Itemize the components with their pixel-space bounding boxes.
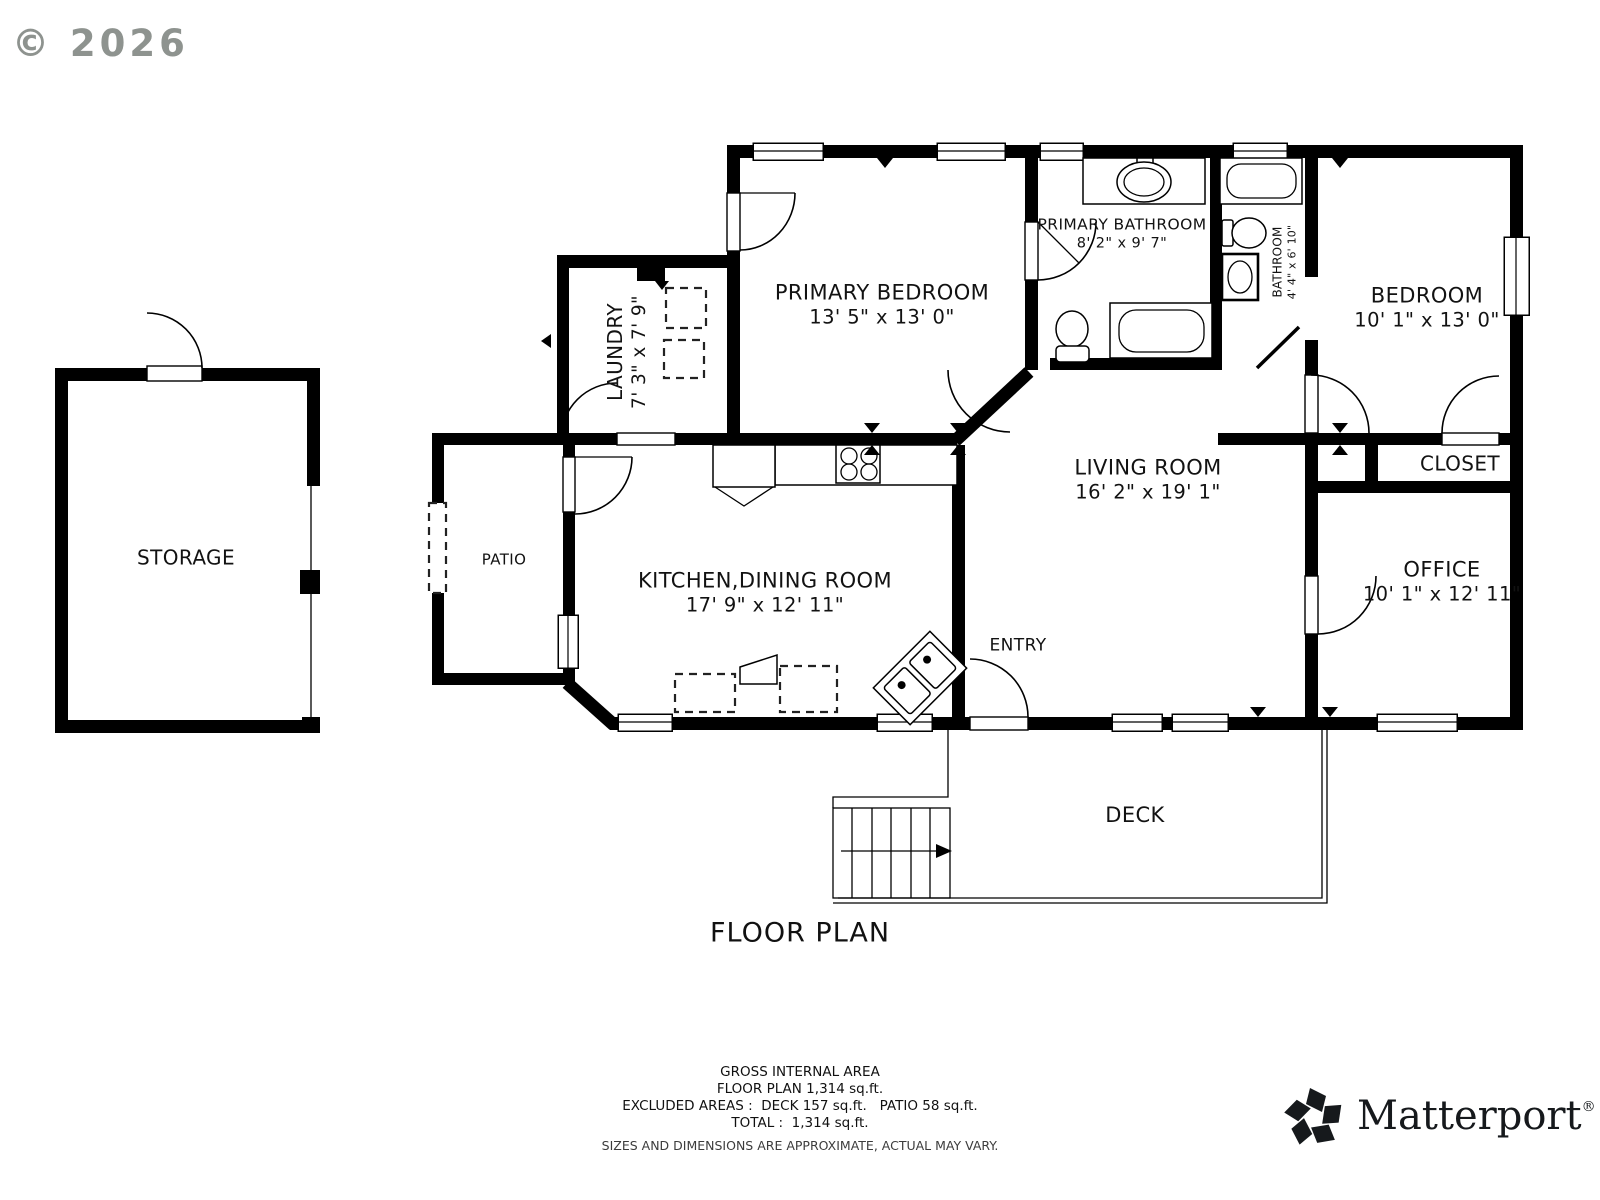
registered-mark: ® <box>1582 1099 1596 1115</box>
room-name: LAUNDRY <box>603 295 628 409</box>
matterport-branding: Matterport® <box>1283 1085 1596 1147</box>
counter-angled <box>740 655 777 684</box>
floor-plan-page: STORAGE PATIO LAUNDRY 7' 3" x 7' 9" KITC… <box>0 0 1600 1200</box>
deck-stairs <box>833 808 952 898</box>
room-name: STORAGE <box>137 546 235 571</box>
washer <box>666 288 706 328</box>
living-room-label: LIVING ROOM 16' 2" x 19' 1" <box>1074 455 1221 506</box>
storage-label: STORAGE <box>137 546 235 571</box>
room-name: CLOSET <box>1420 452 1500 477</box>
room-dims: 10' 1" x 13' 0" <box>1354 309 1499 333</box>
room-name: DECK <box>1105 802 1164 828</box>
toilet <box>1222 218 1266 248</box>
room-dims: 10' 1" x 12' 11" <box>1363 583 1521 607</box>
dryer <box>664 340 704 378</box>
office-label: OFFICE 10' 1" x 12' 11" <box>1363 557 1521 608</box>
deck-label: DECK <box>1105 802 1164 828</box>
room-dims: 8' 2" x 9' 7" <box>1038 235 1207 253</box>
entry-label: ENTRY <box>990 635 1047 656</box>
copyright-watermark: © 2026 <box>12 22 189 65</box>
bathtub <box>1110 303 1212 358</box>
bedroom-closet-door <box>1442 376 1499 445</box>
sink <box>1222 254 1258 300</box>
laundry-label: LAUNDRY 7' 3" x 7' 9" <box>603 295 651 409</box>
patio-screen-opening <box>429 503 446 593</box>
laundry-appliances <box>664 288 706 378</box>
closet-label: CLOSET <box>1420 452 1500 477</box>
room-name: PRIMARY BATHROOM <box>1038 215 1207 234</box>
dishwasher <box>675 674 735 712</box>
room-dims: 16' 2" x 19' 1" <box>1074 481 1221 505</box>
storage-door <box>147 313 202 381</box>
room-name: BEDROOM <box>1354 283 1499 309</box>
bathroom-door <box>1257 327 1299 368</box>
room-name: PATIO <box>482 551 527 570</box>
kitchen-island <box>780 666 837 712</box>
patio-back-door <box>563 457 632 514</box>
room-name: KITCHEN,DINING ROOM <box>638 568 892 594</box>
kitchen-dining-label: KITCHEN,DINING ROOM 17' 9" x 12' 11" <box>638 568 892 619</box>
page-title: FLOOR PLAN <box>710 918 890 949</box>
room-dims: 7' 3" x 7' 9" <box>628 295 651 409</box>
room-name: BATHROOM <box>1271 225 1286 299</box>
deck-outline <box>833 718 1327 903</box>
room-name: LIVING ROOM <box>1074 455 1221 481</box>
brand-name: Matterport <box>1357 1093 1582 1139</box>
room-name: OFFICE <box>1363 557 1521 583</box>
bathtub <box>1220 158 1302 204</box>
room-dims: 17' 9" x 12' 11" <box>638 594 892 618</box>
matterport-wordmark: Matterport® <box>1357 1093 1596 1139</box>
refrigerator <box>713 445 775 487</box>
toilet <box>1056 311 1089 362</box>
primary-bathroom-label: PRIMARY BATHROOM 8' 2" x 9' 7" <box>1038 215 1207 253</box>
room-name: ENTRY <box>990 635 1047 656</box>
bedroom-label: BEDROOM 10' 1" x 13' 0" <box>1354 283 1499 334</box>
primary-bedroom-door <box>727 193 795 251</box>
room-dims: 4' 4" x 6' 10" <box>1286 225 1300 299</box>
patio-label: PATIO <box>482 551 527 570</box>
room-name: PRIMARY BEDROOM <box>775 280 989 306</box>
summary-line: GROSS INTERNAL AREA <box>0 1064 1600 1081</box>
matterport-logo-icon <box>1283 1085 1345 1147</box>
primary-bedroom-label: PRIMARY BEDROOM 13' 5" x 13' 0" <box>775 280 989 331</box>
bathroom-label: BATHROOM 4' 4" x 6' 10" <box>1271 225 1300 299</box>
room-dims: 13' 5" x 13' 0" <box>775 306 989 330</box>
entry-door <box>970 659 1028 730</box>
primary-bathroom-fixtures <box>1056 158 1212 362</box>
